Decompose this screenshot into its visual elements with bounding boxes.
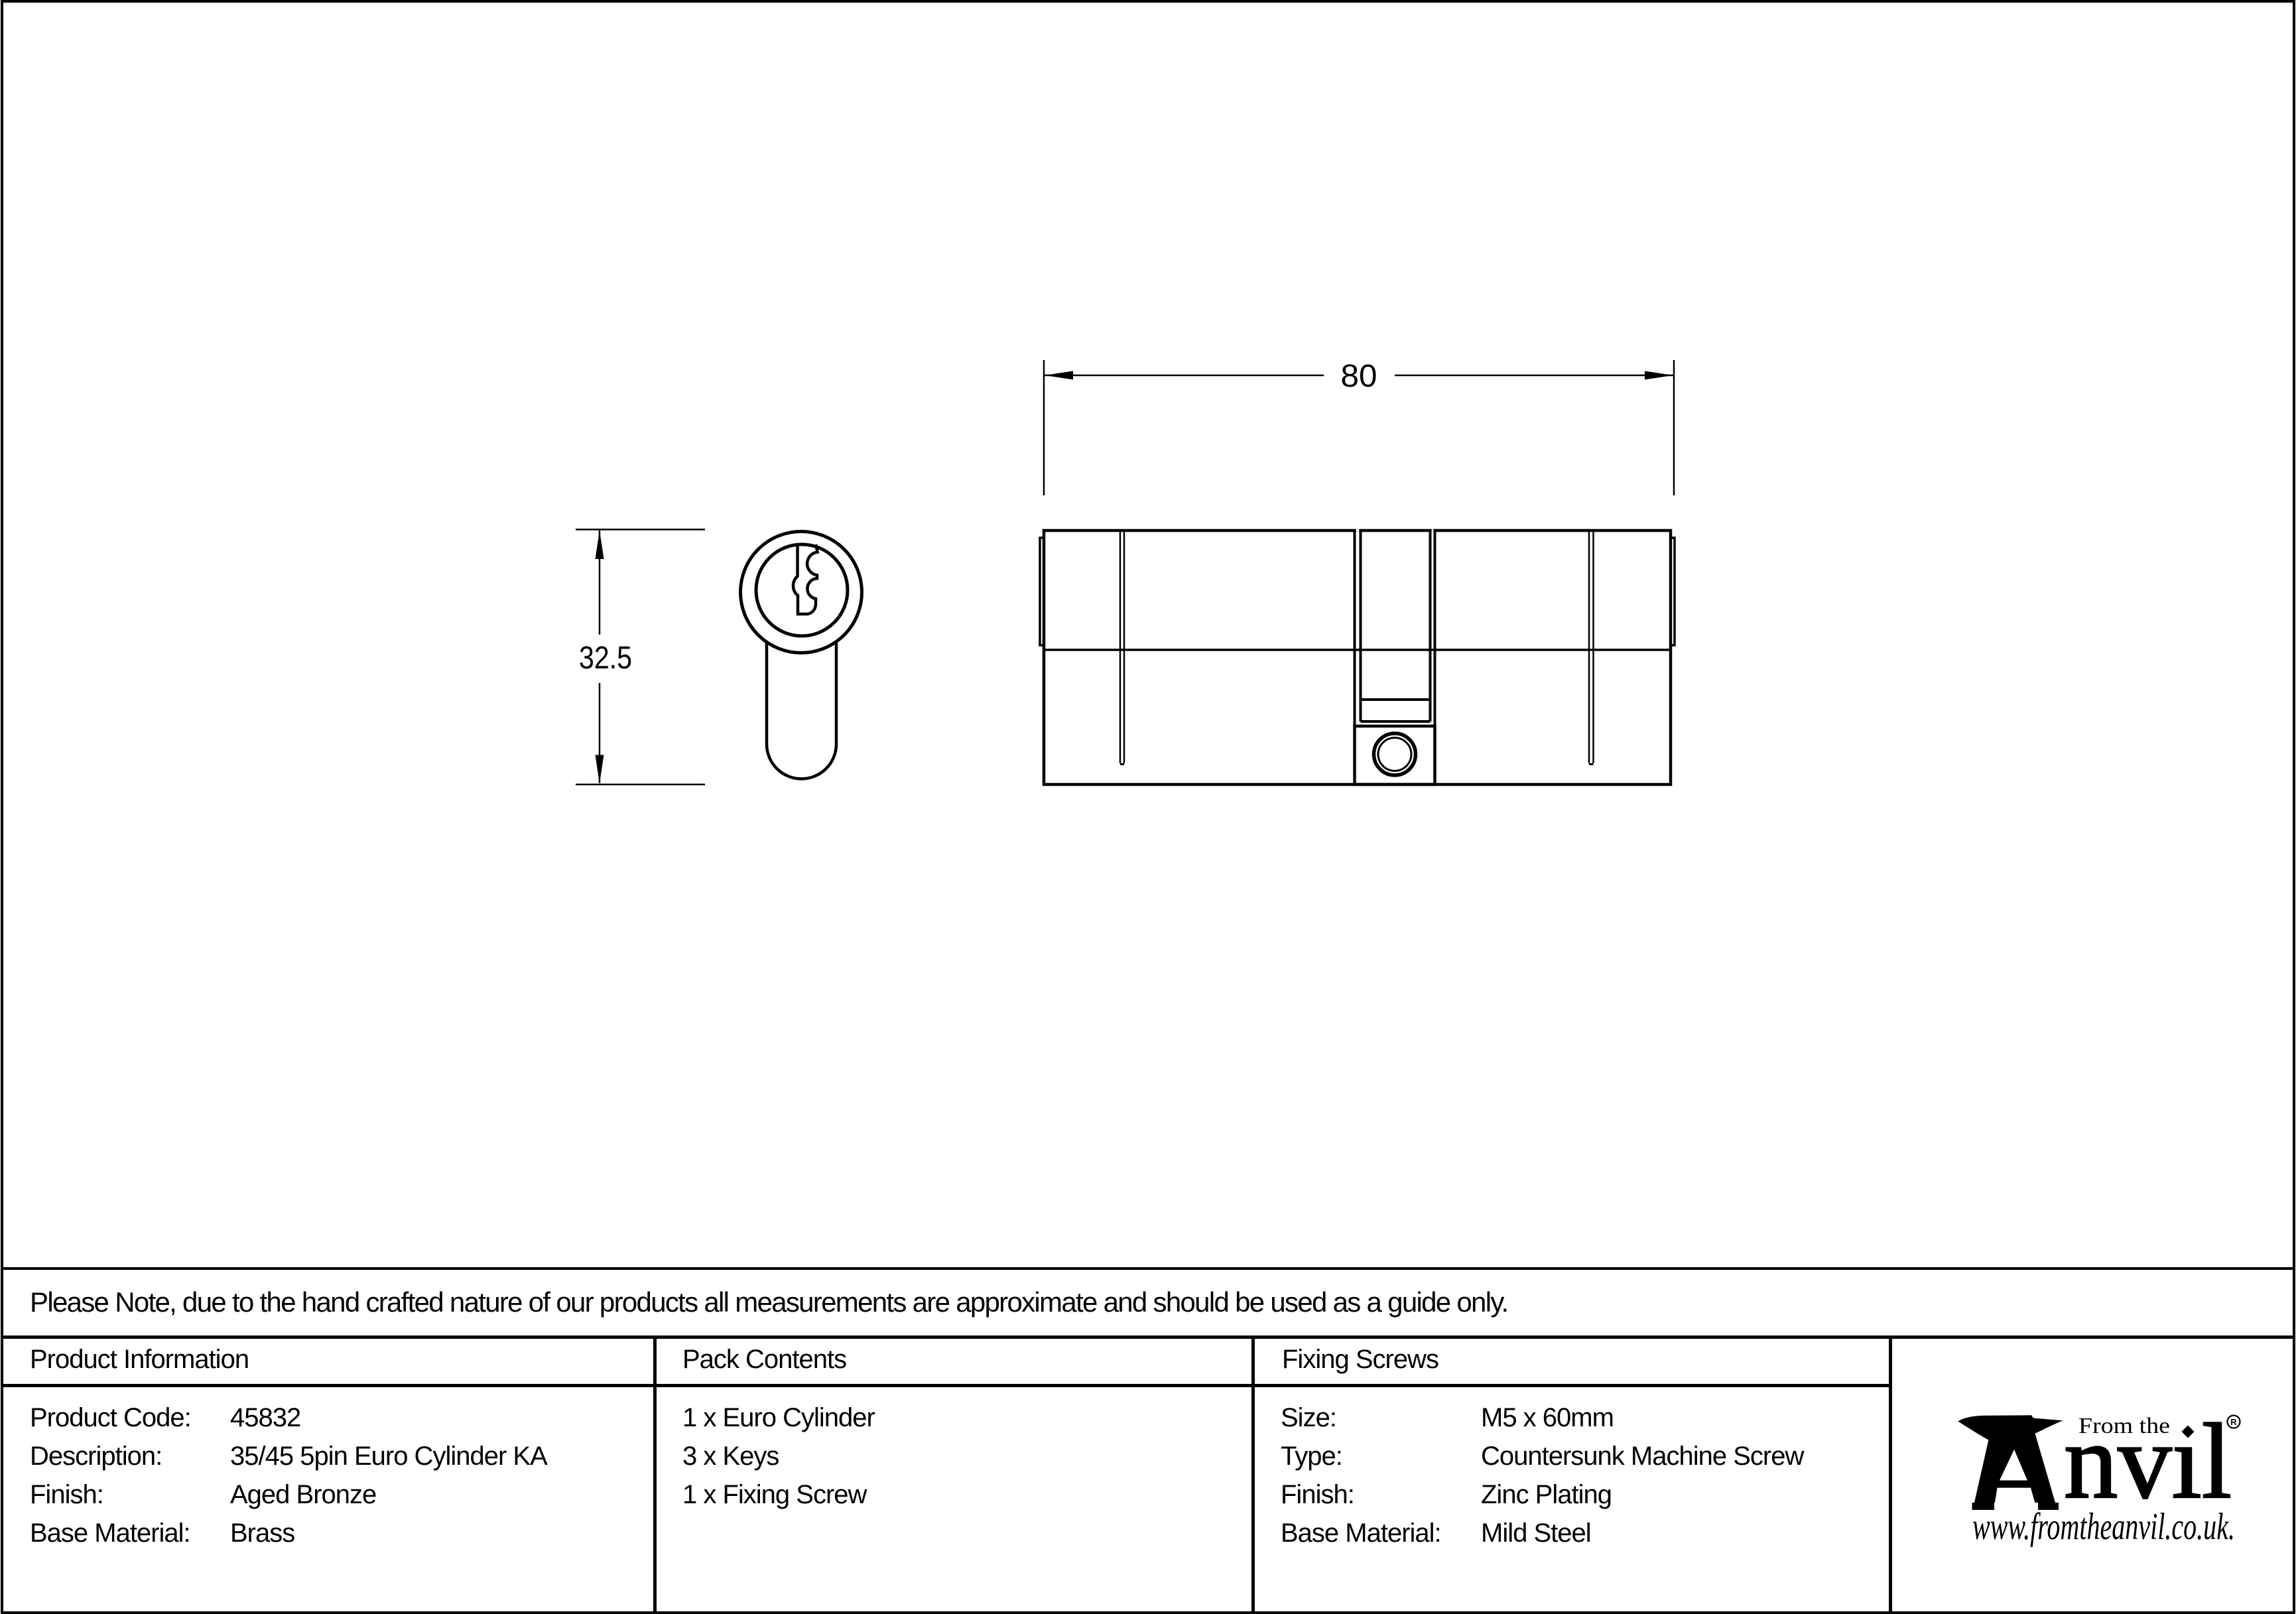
svg-text:32.5: 32.5 — [579, 641, 632, 676]
svg-text:R: R — [2230, 1417, 2237, 1427]
svg-text:From the: From the — [2078, 1414, 2170, 1438]
svg-text:www.fromtheanvil.co.uk.: www.fromtheanvil.co.uk. — [1972, 1506, 2235, 1548]
svg-text:80: 80 — [1341, 359, 1377, 394]
